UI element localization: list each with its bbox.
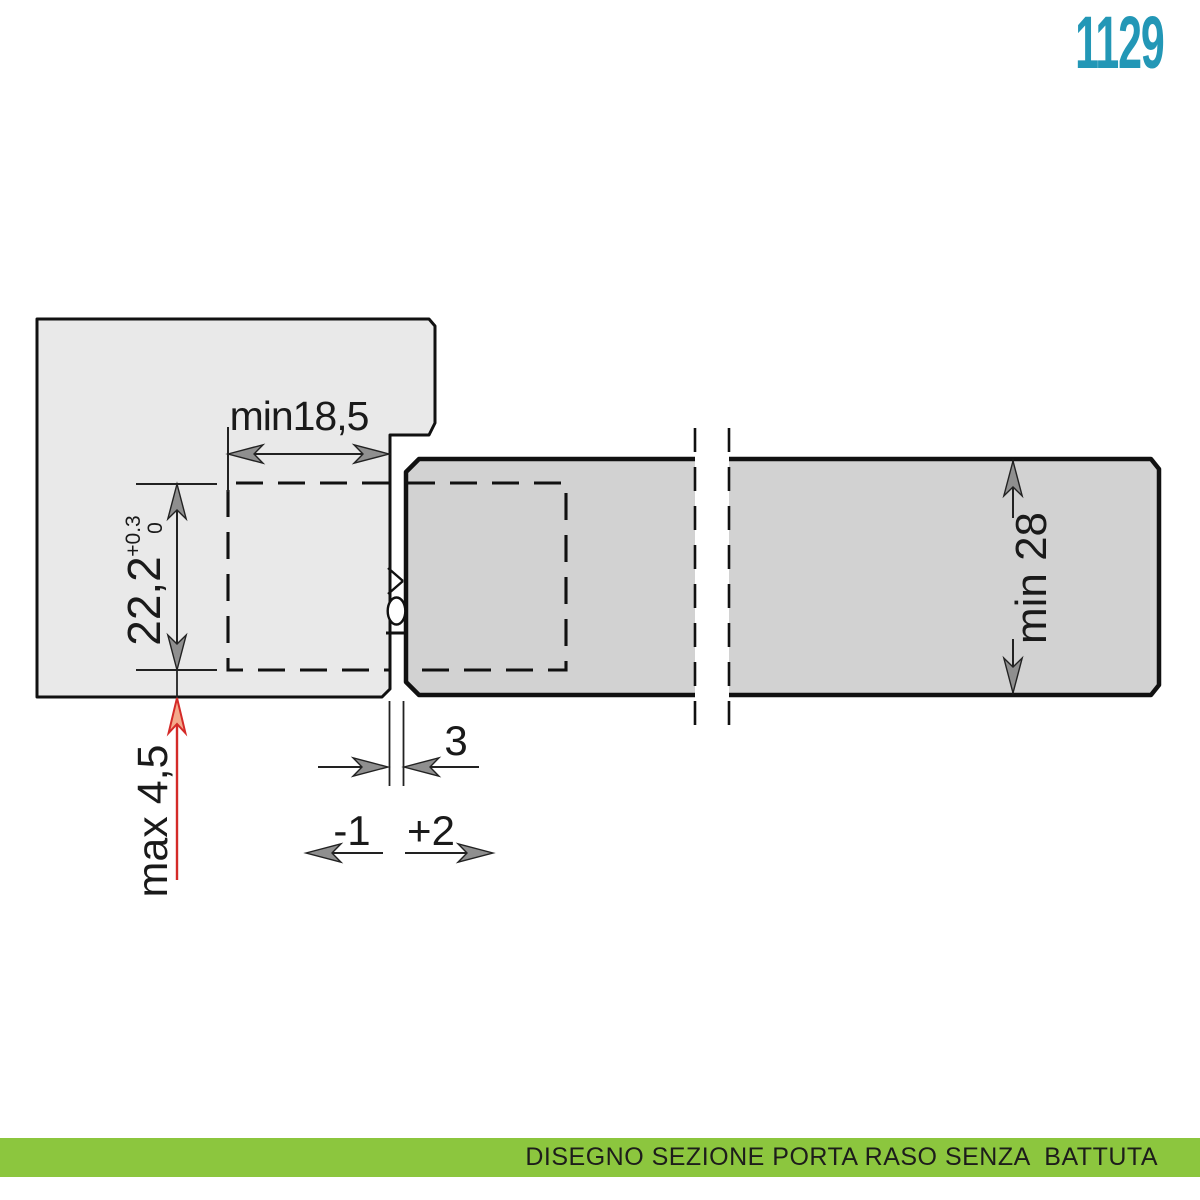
technical-drawing: min18,5 22,2 +0.3 0 max 4,5 min 28 [0, 0, 1200, 1200]
product-code: 1129 [1076, 6, 1164, 80]
dimension-gap-adjustment: -1 +2 [306, 807, 493, 862]
dimension-bottom-clearance: max 4,5 [129, 698, 185, 897]
gap-adjust-plus-label: +2 [407, 807, 455, 854]
dimension-gap-width: 3 [318, 701, 479, 786]
page: 1129 [0, 0, 1200, 1200]
footer-banner: DISEGNO SEZIONE PORTA RASO SENZA BATTUTA [0, 1138, 1200, 1177]
footer-caption: DISEGNO SEZIONE PORTA RASO SENZA BATTUTA [525, 1143, 1158, 1172]
dimension-cup-height-label: 22,2 [118, 556, 170, 646]
break-lines [695, 428, 729, 731]
dimension-gap-width-label: 3 [444, 717, 467, 764]
dimension-door-thickness-label: min 28 [1007, 512, 1056, 644]
pivot-knuckle-icon [388, 598, 406, 625]
dimension-cup-tolerance-lower: 0 [144, 522, 167, 534]
dimension-cup-tolerance-upper: +0.3 [122, 515, 145, 556]
gap-adjust-minus-label: -1 [333, 807, 370, 854]
dimension-bottom-clearance-label: max 4,5 [129, 745, 177, 898]
dimension-frame-depth-label: min18,5 [230, 393, 369, 439]
frame-body [37, 319, 435, 697]
door-segment-right [729, 459, 1159, 695]
frame-section [37, 319, 435, 697]
door-segment-left [406, 459, 695, 695]
